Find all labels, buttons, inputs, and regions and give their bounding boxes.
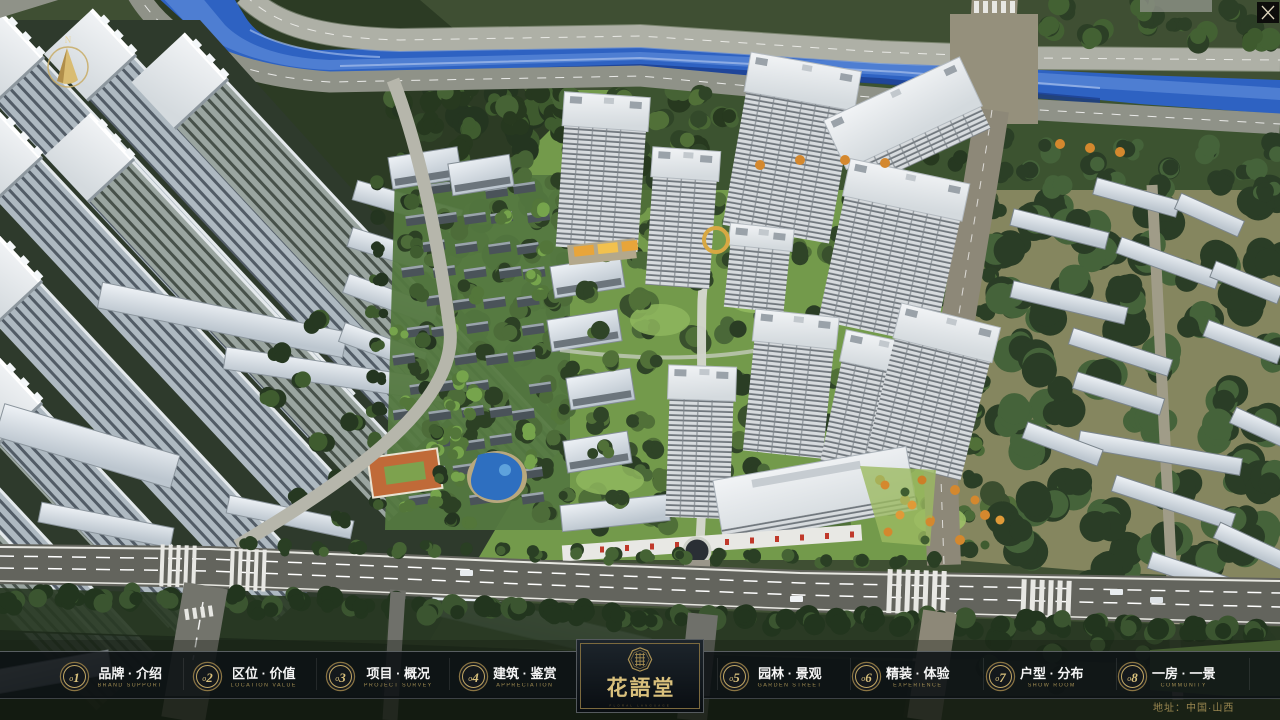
svg-text:N: N <box>65 35 72 45</box>
